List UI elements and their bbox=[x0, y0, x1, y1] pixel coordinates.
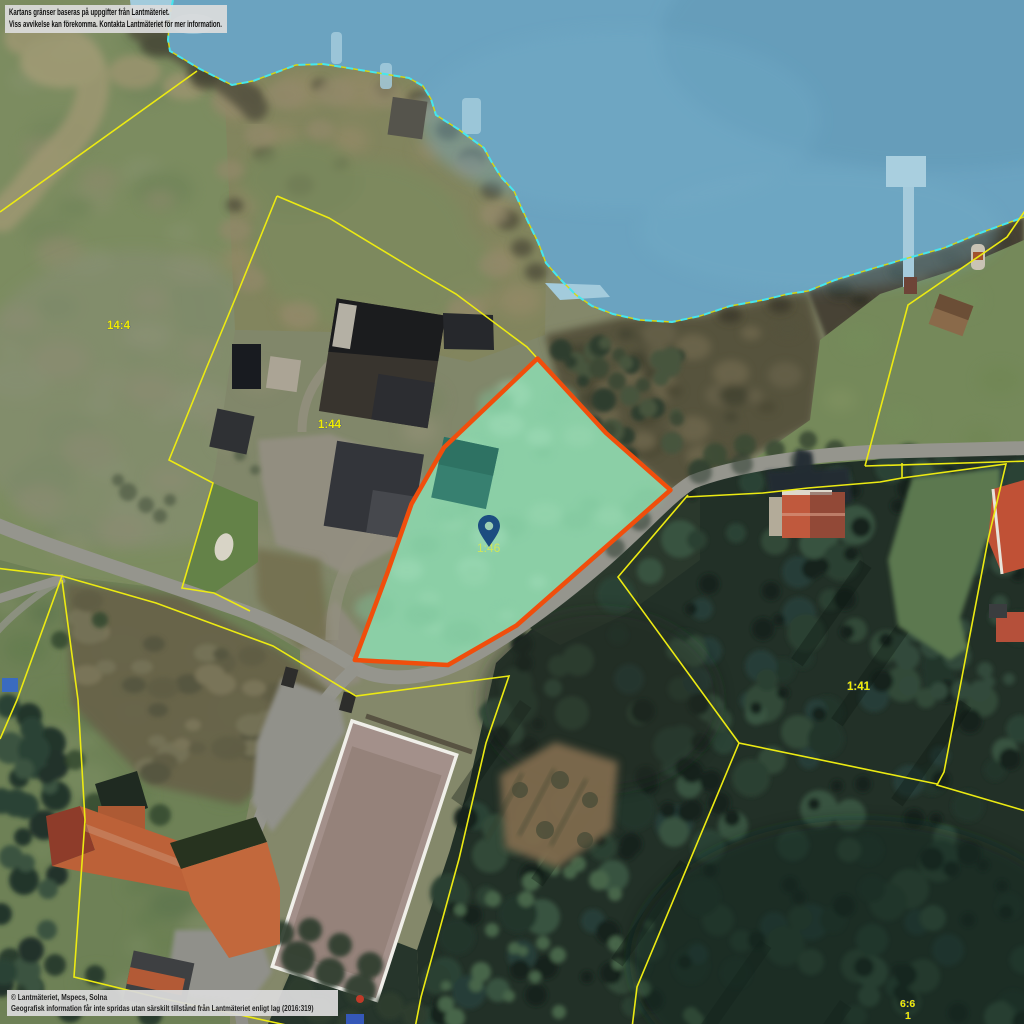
svg-text:1:41: 1:41 bbox=[847, 681, 871, 693]
svg-text:Geografisk information får int: Geografisk information får inte spridas … bbox=[11, 1003, 314, 1013]
svg-text:14:4: 14:4 bbox=[107, 320, 131, 332]
svg-text:Viss avvikelse kan förekomma.: Viss avvikelse kan förekomma. Kontakta L… bbox=[9, 19, 222, 30]
svg-text:1: 1 bbox=[905, 1010, 911, 1022]
svg-text:6:6: 6:6 bbox=[900, 998, 915, 1010]
svg-text:1:44: 1:44 bbox=[318, 419, 342, 431]
svg-text:Kartans gränser baseras på upp: Kartans gränser baseras på uppgifter frå… bbox=[9, 7, 170, 18]
svg-text:© Lantmäteriet, Mspecs, Solna: © Lantmäteriet, Mspecs, Solna bbox=[11, 992, 108, 1002]
